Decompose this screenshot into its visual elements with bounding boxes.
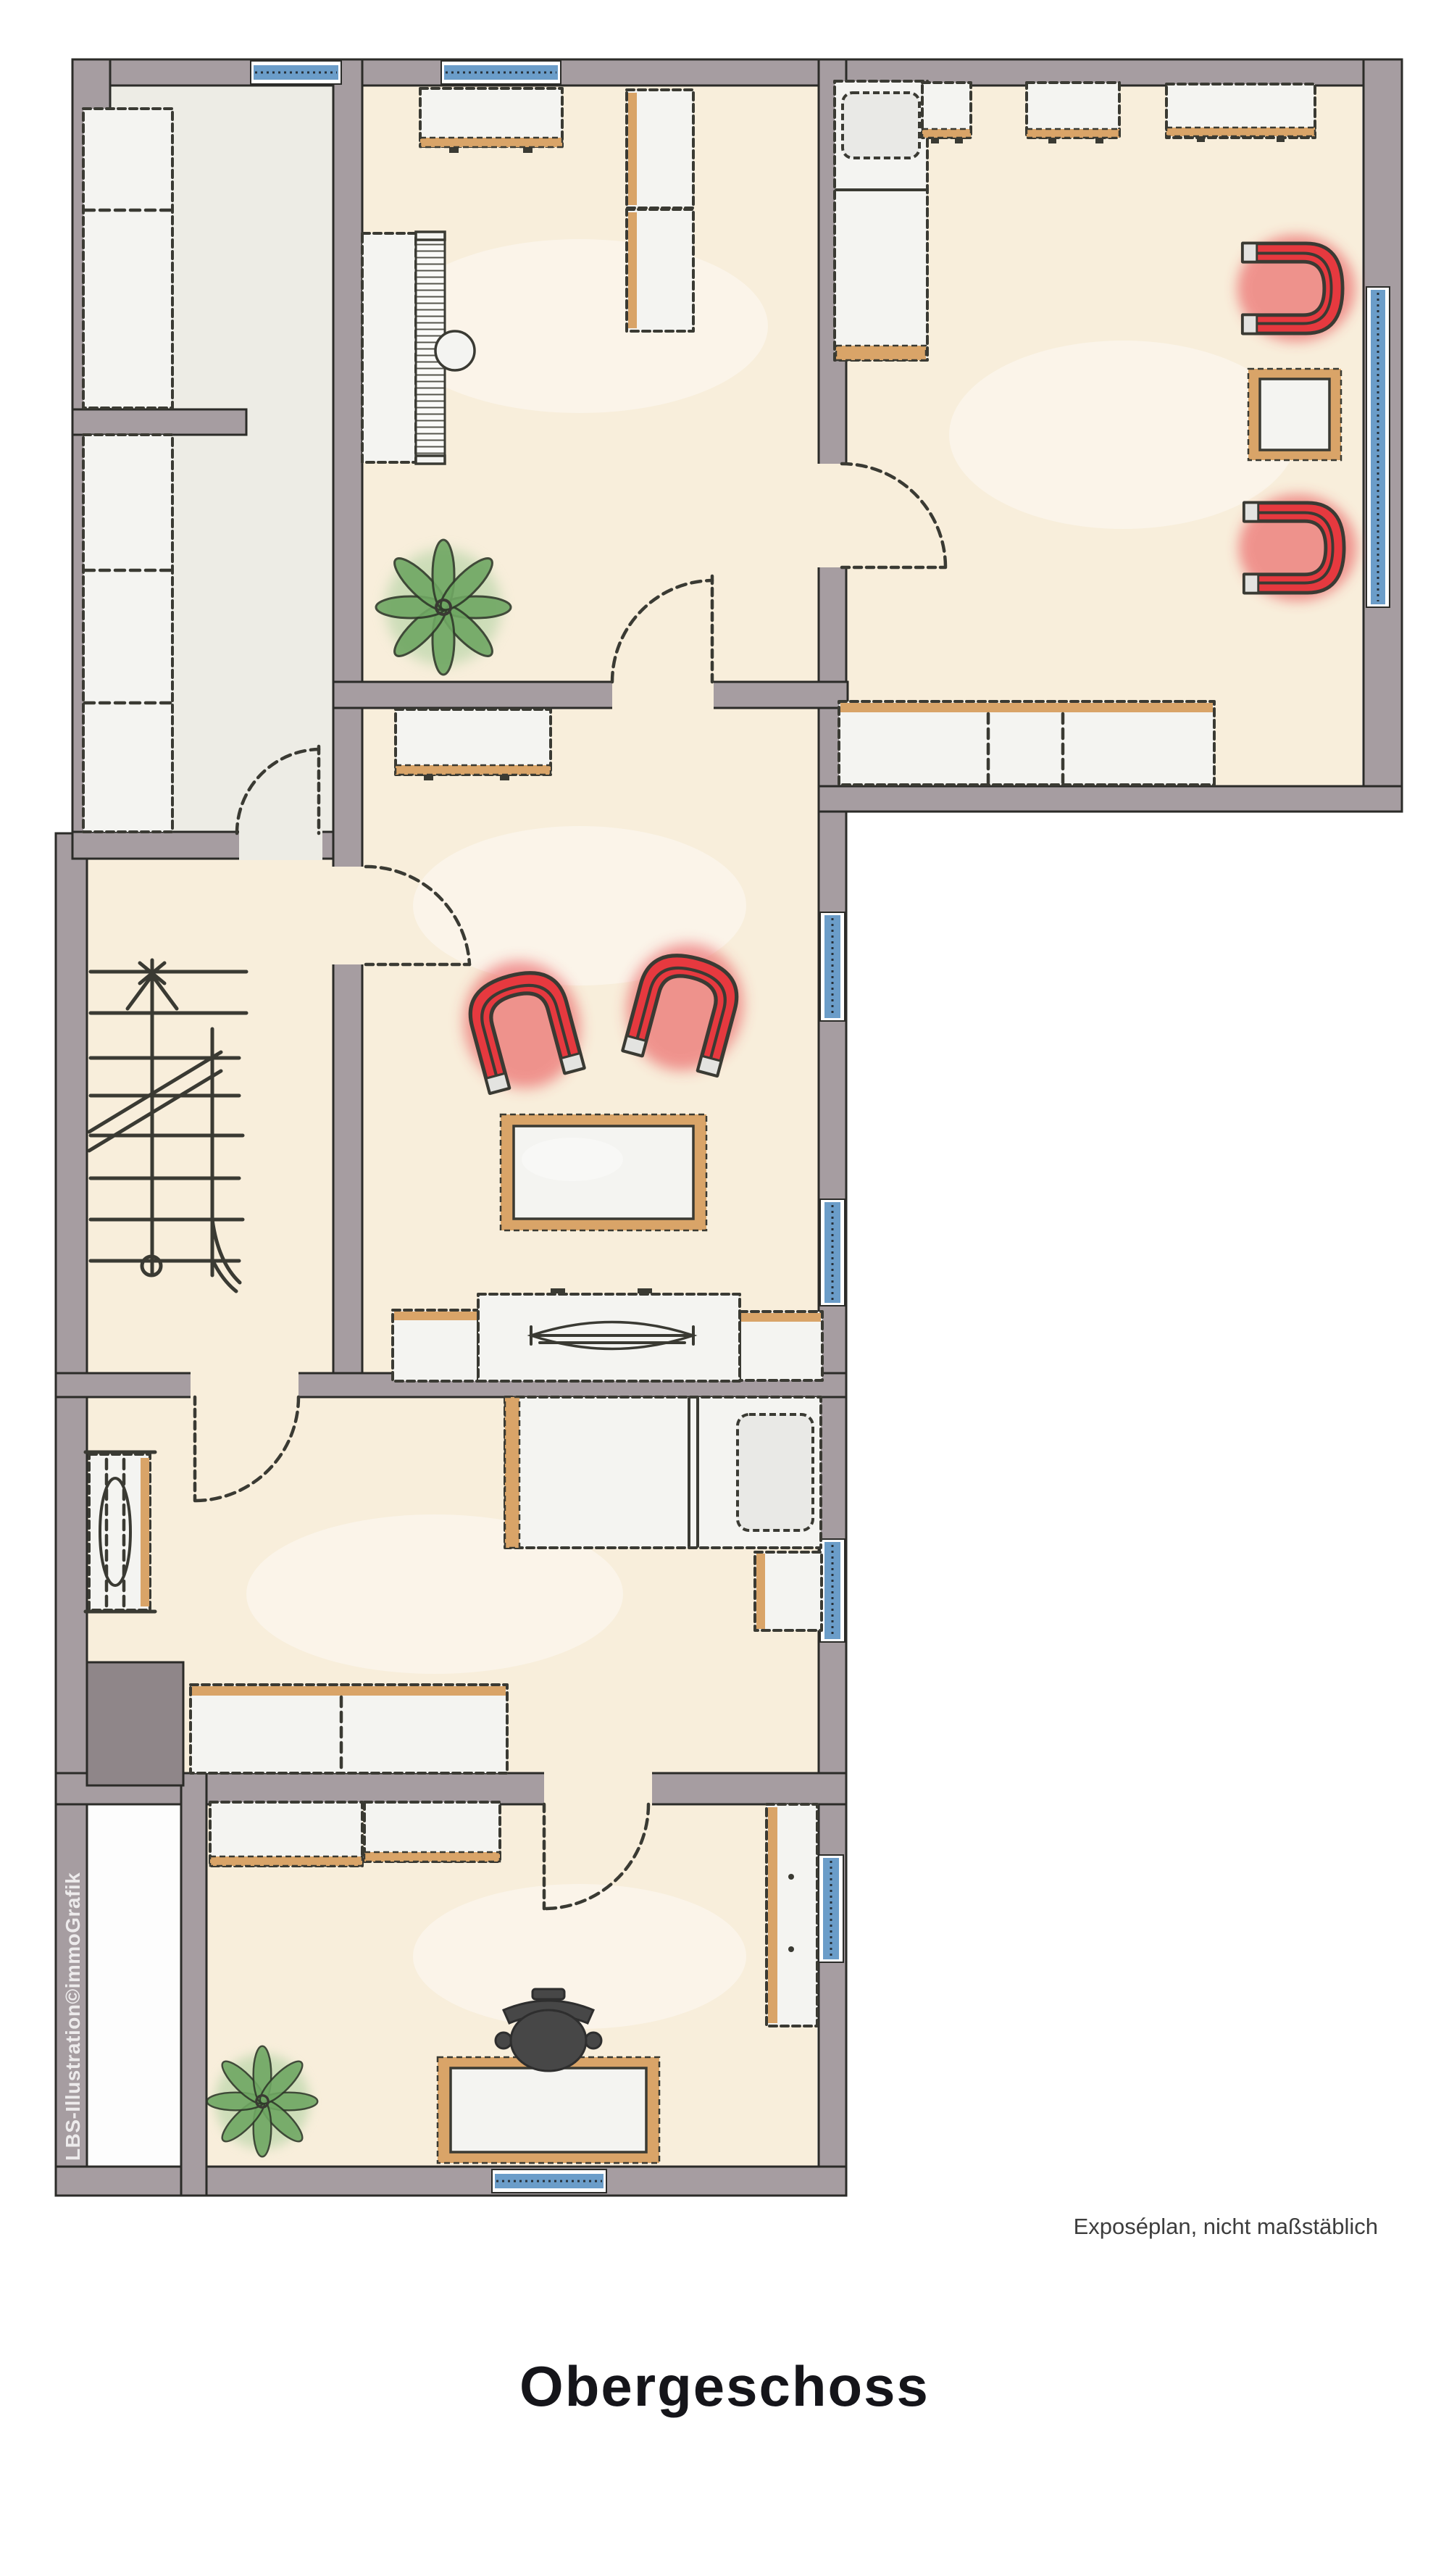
sideboard-icon bbox=[396, 709, 551, 780]
watermark-text: LBS-Illustration©immoGrafik bbox=[62, 1872, 84, 2161]
piano-icon bbox=[362, 232, 445, 464]
cabinet-row-icon bbox=[191, 1685, 507, 1773]
wardrobe-icon bbox=[83, 109, 172, 408]
window-icon bbox=[251, 61, 341, 84]
window-icon bbox=[820, 1539, 845, 1642]
wall-hall-divider bbox=[333, 59, 362, 1397]
side-cabinet bbox=[393, 1310, 478, 1381]
side-table-icon bbox=[1248, 369, 1341, 460]
nightstand-icon bbox=[755, 1552, 822, 1630]
window-icon bbox=[492, 2169, 606, 2193]
wardrobe-icon bbox=[767, 1804, 817, 2026]
floor-plan-svg: LBS-Illustration©immoGrafik Exposéplan, … bbox=[0, 0, 1449, 2576]
coffee-table-icon bbox=[501, 1114, 706, 1230]
window-icon bbox=[820, 1199, 845, 1306]
cabinet-icon bbox=[364, 1802, 500, 1862]
window-icon bbox=[819, 1855, 843, 1962]
cabinet-icon bbox=[1166, 84, 1315, 142]
bed-icon bbox=[835, 81, 927, 360]
window-icon bbox=[820, 912, 845, 1021]
side-cabinet bbox=[740, 1312, 822, 1380]
cabinet-icon bbox=[1027, 83, 1119, 143]
cabinet-icon bbox=[922, 83, 971, 143]
window-icon bbox=[1366, 287, 1390, 607]
plant-icon bbox=[207, 2046, 318, 2157]
wall-topright-bottom bbox=[819, 786, 1402, 812]
cabinet-icon bbox=[210, 1802, 362, 1866]
desk-icon bbox=[438, 2057, 659, 2163]
built-in-closet bbox=[87, 1662, 183, 1785]
red-armchair-icon bbox=[1237, 235, 1356, 341]
floor-title: Obergeschoss bbox=[519, 2354, 930, 2418]
wall-hall-stub bbox=[72, 409, 246, 435]
plan-caption: Exposéplan, nicht maßstäblich bbox=[1074, 2214, 1378, 2239]
red-armchair-icon bbox=[1239, 494, 1357, 601]
floorplan-page: LBS-Illustration©immoGrafik Exposéplan, … bbox=[0, 0, 1449, 2576]
small-room-floor bbox=[87, 1804, 181, 2167]
living-room-floor bbox=[362, 708, 819, 1384]
wardrobe-icon bbox=[627, 90, 693, 331]
wall-smallroom-right bbox=[181, 1773, 206, 2196]
plant-icon bbox=[376, 540, 511, 675]
window-icon bbox=[441, 61, 561, 84]
dressing-table-icon bbox=[85, 1452, 155, 1612]
wardrobe-icon bbox=[83, 435, 172, 832]
wall-bottom bbox=[56, 2167, 846, 2196]
sideboard-icon bbox=[839, 701, 1214, 785]
bed-icon bbox=[505, 1397, 821, 1548]
sideboard-icon bbox=[420, 88, 562, 153]
wall-living-top bbox=[333, 682, 848, 708]
landing-floor bbox=[87, 859, 333, 1373]
stool-icon bbox=[435, 331, 475, 370]
